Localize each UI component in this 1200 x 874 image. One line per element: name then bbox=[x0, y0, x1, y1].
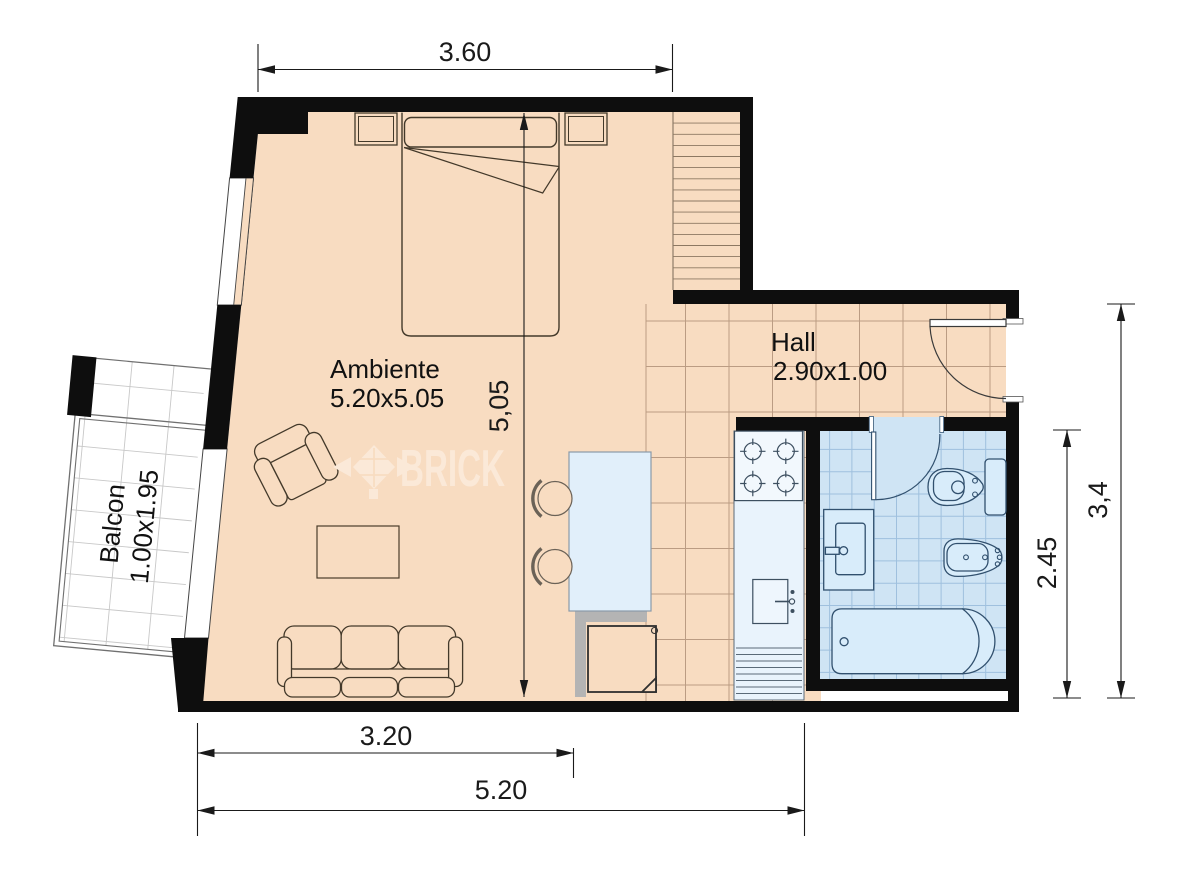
svg-text:3.20: 3.20 bbox=[360, 721, 413, 751]
svg-text:2.90x1.00: 2.90x1.00 bbox=[773, 356, 887, 386]
svg-text:3,4: 3,4 bbox=[1083, 481, 1113, 519]
svg-text:3.60: 3.60 bbox=[439, 37, 492, 67]
svg-text:BRICK: BRICK bbox=[400, 440, 505, 498]
svg-text:Ambiente: Ambiente bbox=[330, 354, 440, 384]
svg-text:5,05: 5,05 bbox=[484, 380, 514, 433]
svg-text:5.20: 5.20 bbox=[475, 775, 528, 805]
svg-text:5.20x5.05: 5.20x5.05 bbox=[330, 383, 444, 413]
svg-text:2.45: 2.45 bbox=[1032, 537, 1062, 590]
svg-text:Hall: Hall bbox=[771, 327, 816, 357]
